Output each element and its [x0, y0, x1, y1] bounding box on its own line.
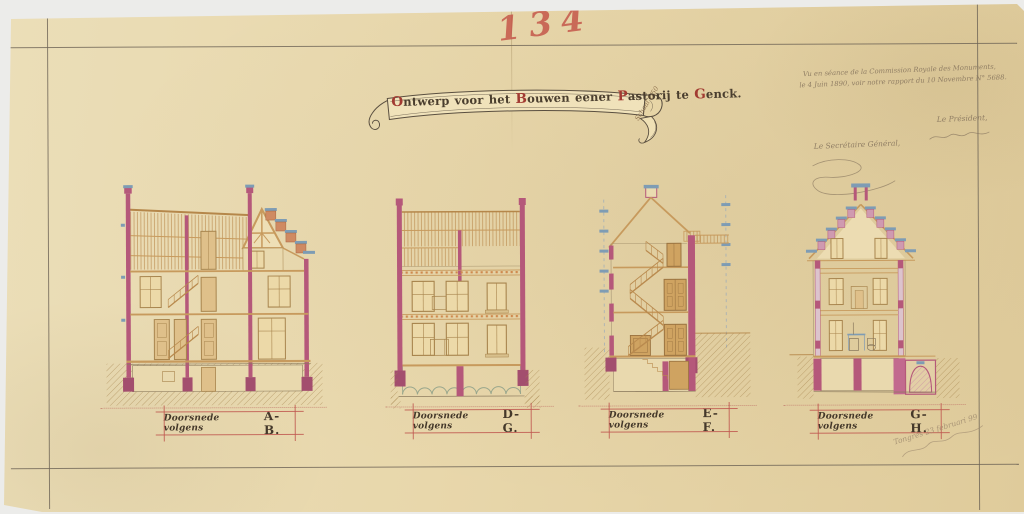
title-banner: Ontwerp voor het Bouwen eener Pastorij t…: [361, 75, 673, 150]
inventory-number: 134: [495, 0, 595, 49]
section-label-dg: Doorsnede volgens D-G.: [413, 409, 532, 434]
section-ab: [106, 179, 323, 414]
section-drawing-ab: [106, 179, 323, 410]
sheet-border-line-left: [47, 15, 50, 509]
label-prefix: Doorsnede volgens: [164, 413, 260, 433]
cistern-vault: [905, 360, 935, 394]
label-frame-line: [531, 403, 532, 439]
label-prefix: Doorsnede volgens: [609, 410, 699, 430]
secretary-label: Le Secrétaire Général,: [814, 138, 901, 150]
roof: [609, 185, 729, 248]
staircase: [168, 275, 198, 358]
label-prefix: Doorsnede volgens: [818, 411, 907, 431]
label-letters: D-G.: [502, 407, 531, 435]
president-signature: [925, 123, 996, 148]
label-frame-line: [413, 403, 414, 439]
label-frame-line: [729, 402, 730, 438]
chimney: [851, 183, 870, 200]
label-frame-line: [164, 406, 165, 442]
drawing-sheet: 134 Ontwerp voor het Bouwen eener Pastor…: [0, 0, 1024, 512]
section-drawing-gh: [789, 182, 960, 405]
label-frame-line: [609, 403, 610, 439]
banner-ribbon-drawing: [361, 75, 673, 150]
sheet-border-line-bottom: [11, 464, 1019, 469]
label-prefix: Doorsnede volgens: [413, 411, 499, 431]
section-ef: [584, 183, 751, 410]
section-drawing-dg: [390, 194, 549, 411]
section-gh: [789, 182, 960, 409]
label-frame-line: [295, 405, 296, 441]
sheet-content: 134 Ontwerp voor het Bouwen eener Pastor…: [0, 0, 1024, 514]
section-drawing-ef: [584, 183, 751, 406]
scan-background: 134 Ontwerp voor het Bouwen eener Pastor…: [0, 0, 1024, 512]
section-label-ab: Doorsnede volgens A-B.: [164, 411, 296, 436]
label-letters: A-B.: [264, 409, 296, 437]
kitchen-fittings: [847, 322, 875, 350]
label-frame-line: [818, 404, 819, 440]
label-letters: E-F.: [703, 406, 730, 434]
section-label-ef: Doorsnede volgens E-F.: [609, 408, 730, 433]
section-dg: [390, 194, 549, 415]
